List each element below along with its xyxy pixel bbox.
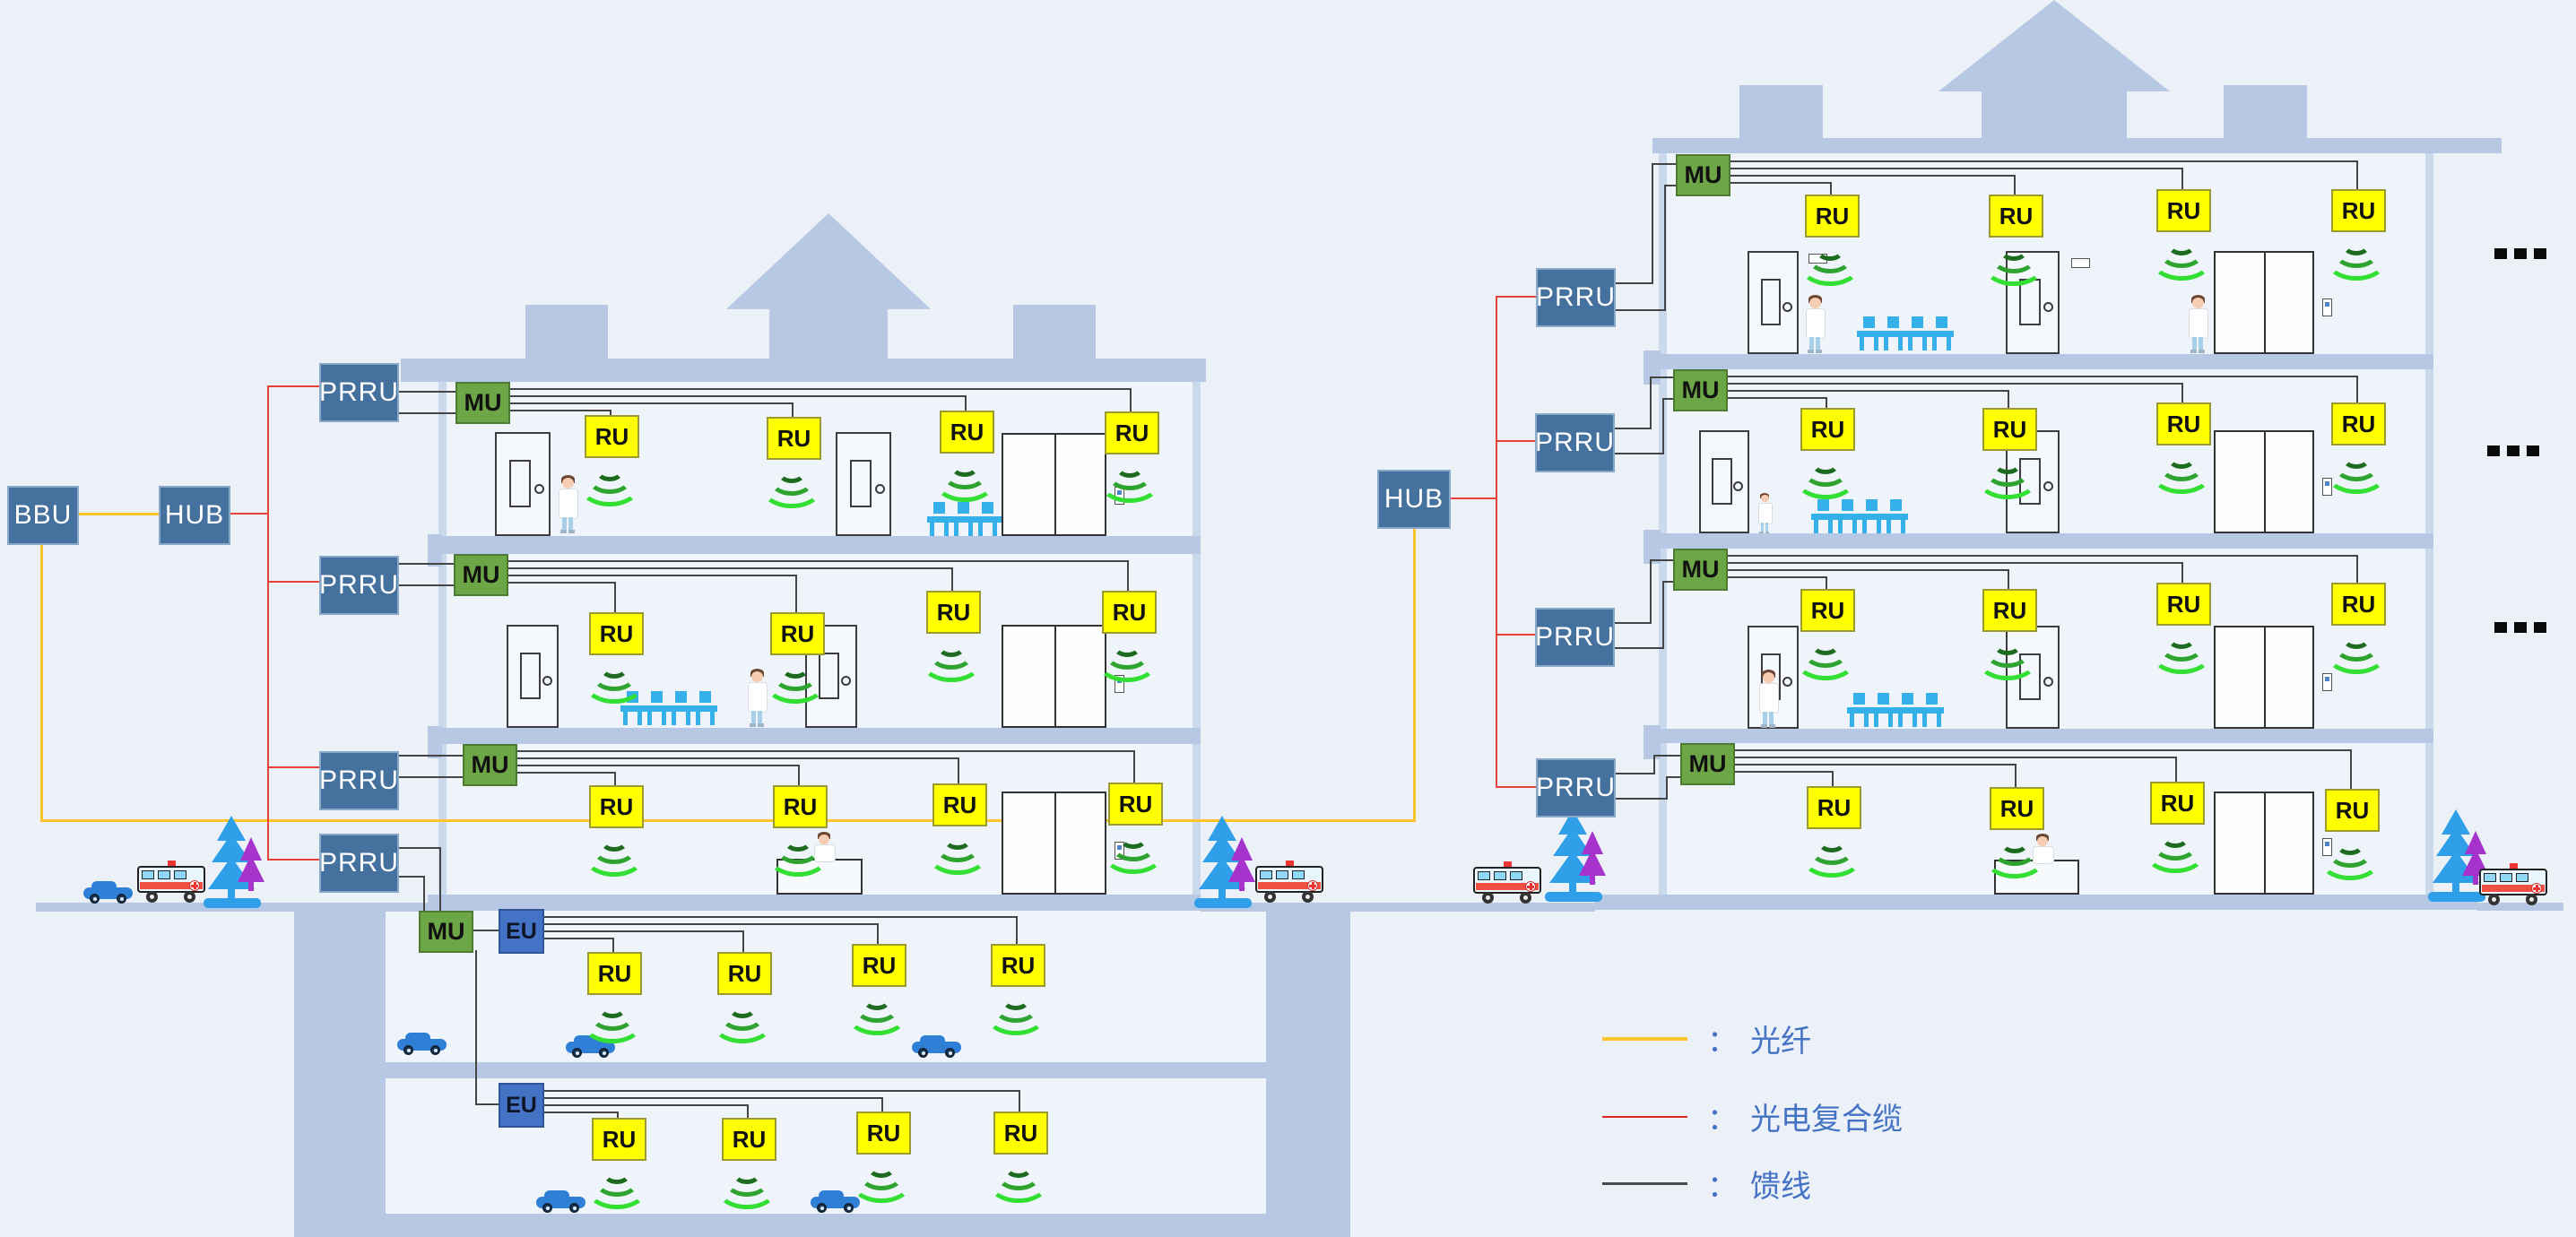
legend-label-feeder: 馈线 — [1750, 1162, 1811, 1206]
ellipsis-more-floors-icon — [2527, 445, 2539, 456]
ellipsis-more-floors-icon — [2494, 622, 2507, 633]
elevator-icon — [2214, 792, 2314, 895]
composite-cable-line — [1447, 497, 1497, 499]
ellipsis-more-floors-icon — [2514, 622, 2527, 633]
ambulance-cross-icon — [1527, 886, 1534, 888]
chair-icon — [651, 691, 663, 703]
ru-box: RU — [2331, 189, 2386, 232]
feeder-line — [1731, 757, 2177, 758]
chair-icon — [1863, 316, 1875, 328]
prru-box: PRRU — [1536, 758, 1616, 817]
feeder-line — [1662, 398, 1664, 454]
ru-box: RU — [722, 1118, 776, 1161]
chair-icon — [1860, 514, 1884, 520]
signal-icon — [848, 989, 906, 1028]
tree-purple-icon — [1590, 874, 1595, 885]
ru-box: RU — [770, 612, 825, 655]
signal-icon — [1803, 831, 1860, 870]
signal-icon — [585, 830, 643, 869]
chair-icon — [978, 523, 983, 536]
feeder-line — [541, 923, 879, 925]
ru-box: RU — [856, 1112, 911, 1155]
fiber-line — [40, 541, 43, 822]
ambulance-wheel-icon — [187, 895, 192, 899]
chair-icon — [1890, 499, 1902, 511]
tree-base-icon — [1545, 892, 1602, 902]
feeder-line — [1662, 581, 1664, 649]
feeder-line — [395, 584, 455, 586]
chair-icon — [958, 502, 969, 514]
ambulance-icon — [1292, 870, 1305, 879]
feeder-line — [1611, 647, 1664, 649]
feeder-line — [1611, 428, 1652, 429]
doctor-figure — [1756, 493, 1774, 534]
signal-icon — [1797, 453, 1854, 492]
feeder-line — [541, 1112, 619, 1113]
floor-slab — [1659, 533, 2433, 549]
ambulance-wheel-icon — [150, 895, 154, 899]
feeder-line — [1652, 163, 1653, 284]
ellipsis-more-floors-icon — [2487, 445, 2500, 456]
ru-box: RU — [1108, 783, 1163, 826]
feeder-line — [1019, 1090, 1020, 1113]
chair-icon — [1874, 714, 1878, 727]
elevator-icon — [1002, 433, 1106, 536]
signal-icon — [1986, 832, 2043, 871]
signal-icon — [2153, 627, 2210, 667]
elevator-call-panel-icon — [2322, 673, 2332, 691]
composite-cable-line — [267, 385, 321, 387]
network-architecture-diagram: BBUHUBHUBPRRUPRRUPRRUPRRUPRRUPRRUPRRUPRR… — [0, 0, 2576, 1237]
car-wheel-icon — [434, 1049, 438, 1052]
chair-icon — [1895, 707, 1920, 714]
feeder-line — [541, 1090, 1020, 1092]
floor-slab — [1659, 729, 2433, 743]
chair-icon — [675, 691, 687, 703]
chair-icon — [944, 523, 949, 536]
feeder-line — [507, 388, 1132, 390]
feeder-line — [2181, 168, 2183, 191]
building-roof — [1652, 138, 2502, 153]
ambulance-wheel-icon — [1523, 895, 1528, 900]
feeder-line — [1664, 185, 1666, 311]
feeder-line — [742, 930, 744, 954]
ru-box: RU — [1982, 408, 2037, 451]
feeder-line — [1727, 182, 1832, 184]
door-icon — [836, 432, 891, 536]
ru-box: RU — [587, 952, 642, 995]
ambulance-wheel-icon — [1486, 895, 1490, 900]
roof-arrow-icon — [1939, 0, 2170, 138]
chair-icon — [1862, 520, 1867, 533]
signal-icon — [1105, 827, 1162, 867]
chair-icon — [1847, 707, 1871, 714]
chair-icon — [1926, 693, 1938, 705]
composite-cable-line — [1496, 440, 1537, 442]
signal-icon — [588, 1163, 646, 1202]
signal-icon — [853, 1156, 910, 1196]
street-ground — [1201, 903, 1595, 912]
ambulance-wheel-icon — [2492, 897, 2496, 902]
building-roof — [401, 359, 1206, 382]
ru-box: RU — [2325, 789, 2380, 832]
hub-box: HUB — [1377, 470, 1451, 529]
bbu-box: BBU — [7, 486, 79, 545]
feeder-line — [1727, 175, 2016, 177]
chair-icon — [1877, 520, 1881, 533]
floor-slab — [1659, 354, 2433, 369]
building-wall — [438, 382, 447, 895]
chair-icon — [933, 502, 945, 514]
ru-box: RU — [1800, 408, 1855, 451]
doctor-figure — [1756, 670, 1781, 729]
signal-icon — [2328, 234, 2385, 273]
mu-box: MU — [419, 911, 473, 953]
feeder-line — [423, 876, 425, 913]
feeder-line — [1611, 622, 1652, 624]
chimney — [1739, 85, 1823, 138]
feeder-line — [1731, 771, 1834, 773]
signal-icon — [714, 997, 771, 1036]
signal-icon — [2153, 234, 2210, 273]
chair-icon — [710, 712, 715, 725]
chair-icon — [662, 712, 666, 725]
feeder-line — [2356, 555, 2358, 584]
chair-icon — [1871, 707, 1895, 714]
prru-box: PRRU — [319, 363, 399, 422]
feeder-line — [2175, 757, 2177, 783]
feeder-line — [2356, 376, 2358, 404]
soil-block — [294, 907, 386, 1237]
chair-icon — [696, 712, 700, 725]
chair-icon — [623, 712, 628, 725]
chair-icon — [1908, 337, 1912, 350]
signal-icon — [923, 636, 980, 675]
ru-box: RU — [2331, 583, 2386, 626]
basement-slab — [386, 1062, 1266, 1078]
chair-icon — [1814, 520, 1818, 533]
feeder-line — [1727, 168, 2183, 169]
mu-box: MU — [1680, 743, 1735, 785]
chair-icon — [1912, 714, 1917, 727]
chair-icon — [699, 691, 711, 703]
feeder-line — [1724, 390, 2009, 392]
chair-icon — [1811, 514, 1835, 520]
eu-box: EU — [499, 1083, 544, 1128]
feeder-line — [507, 410, 611, 411]
chair-icon — [1936, 316, 1947, 328]
chair-icon — [930, 523, 934, 536]
feeder-line — [1653, 755, 1682, 757]
chair-icon — [1878, 693, 1889, 705]
feeder-line — [2356, 160, 2358, 191]
ru-box: RU — [2156, 402, 2211, 445]
signal-icon — [2328, 447, 2385, 487]
chimney — [1013, 305, 1096, 359]
ambulance-icon — [2516, 873, 2528, 882]
ru-box: RU — [2331, 402, 2386, 445]
doctor-figure — [1802, 295, 1827, 354]
feeder-line — [439, 847, 441, 913]
chair-icon — [1902, 693, 1913, 705]
feeder-line — [2008, 390, 2009, 410]
mu-box: MU — [1676, 154, 1730, 196]
feeder-line — [958, 757, 959, 785]
feeder-line — [1016, 916, 1018, 946]
feeder-line — [1612, 798, 1668, 800]
chair-icon — [1887, 316, 1899, 328]
ambulance-icon — [1260, 870, 1272, 879]
feeder-line — [514, 765, 800, 766]
ambulance-wheel-icon — [1268, 895, 1272, 899]
chair-icon — [637, 712, 642, 725]
chair-icon — [1884, 514, 1908, 520]
floor-slab-lip — [428, 534, 442, 567]
feeder-line — [1650, 376, 1652, 429]
feeder-line — [514, 772, 616, 774]
floor-slab-lip — [428, 726, 442, 758]
ambulance-icon — [2484, 873, 2496, 882]
ru-box: RU — [1807, 786, 1861, 829]
building-wall — [1193, 382, 1201, 895]
chair-icon — [1922, 337, 1927, 350]
ellipsis-more-floors-icon — [2514, 248, 2527, 259]
chair-icon — [1912, 316, 1923, 328]
composite-cable-line — [1496, 786, 1538, 788]
feeder-line — [395, 876, 425, 878]
ambulance-cross-icon — [191, 885, 198, 887]
chair-icon — [951, 516, 976, 523]
ru-box: RU — [993, 1112, 1048, 1155]
ru-box: RU — [2156, 583, 2211, 626]
ru-box: RU — [717, 952, 772, 995]
chair-icon — [1874, 337, 1878, 350]
feeder-line — [1650, 559, 1675, 561]
feeder-line — [395, 391, 457, 393]
ru-box: RU — [1102, 591, 1157, 634]
feeder-line — [1666, 776, 1668, 800]
floor-slab — [438, 728, 1201, 744]
mu-box: MU — [1673, 549, 1728, 591]
ambulance-icon — [158, 870, 170, 879]
chair-icon — [1886, 520, 1891, 533]
feeder-line-sample — [1602, 1182, 1687, 1185]
feeder-line — [507, 402, 794, 404]
chair-icon — [954, 523, 958, 536]
floor-slab — [438, 536, 1201, 554]
chair-icon — [1898, 714, 1903, 727]
signal-icon — [585, 657, 643, 696]
chair-icon — [1853, 693, 1865, 705]
feeder-line — [1653, 755, 1655, 774]
tree-purple-icon — [2473, 874, 2478, 885]
signal-icon — [2321, 834, 2379, 873]
feeder-line — [1724, 383, 2183, 385]
roof-arrow-icon — [726, 213, 931, 359]
chair-icon — [1898, 337, 1903, 350]
ambulance-icon — [142, 870, 154, 879]
composite-cable-line — [1496, 634, 1537, 636]
signal-icon — [718, 1163, 776, 1202]
chair-icon — [1920, 707, 1944, 714]
ru-box: RU — [767, 417, 821, 460]
legend-row-fiber: ： 光纤 — [1602, 1016, 1811, 1060]
feeder-line — [2014, 175, 2016, 196]
legend-row-feeder: ： 馈线 — [1602, 1162, 1811, 1206]
signal-icon — [1797, 634, 1854, 673]
chair-icon — [1838, 520, 1843, 533]
signal-icon — [769, 830, 827, 869]
basement-ground — [296, 1214, 1350, 1237]
feeder-line — [877, 923, 879, 946]
feeder-line — [505, 582, 616, 584]
feeder-line — [1612, 282, 1653, 284]
chair-icon — [1866, 499, 1878, 511]
feeder-line — [1611, 453, 1664, 454]
door-icon — [495, 432, 551, 536]
composite-cable-sample — [1602, 1116, 1687, 1118]
ambulance-icon — [1276, 870, 1288, 879]
signal-icon — [1801, 239, 1859, 279]
feeder-line — [1127, 560, 1129, 593]
chair-icon — [993, 523, 997, 536]
feeder-line — [541, 930, 744, 932]
chair-icon — [1850, 714, 1854, 727]
ru-box: RU — [932, 783, 987, 826]
feeder-line — [395, 847, 441, 849]
composite-cable-line — [267, 385, 269, 861]
feeder-line — [514, 757, 959, 759]
feeder-line — [1650, 559, 1652, 624]
building-foundation — [1595, 895, 2478, 910]
feeder-line — [951, 567, 953, 593]
tree-base-icon — [1194, 898, 1252, 908]
prru-box: PRRU — [1535, 608, 1615, 667]
feeder-line — [1650, 376, 1675, 378]
composite-cable-line — [227, 513, 269, 515]
signal-icon — [1101, 456, 1158, 496]
legend-colon: ： — [1707, 1016, 1738, 1060]
feeder-line — [475, 1103, 500, 1105]
feeder-line — [1724, 562, 2183, 564]
chair-icon — [1901, 520, 1905, 533]
chair-icon — [686, 712, 690, 725]
ru-box: RU — [852, 944, 906, 987]
feeder-line — [2181, 562, 2183, 584]
ru-box: RU — [585, 415, 639, 458]
signal-icon — [2153, 447, 2210, 487]
prru-box: PRRU — [1536, 268, 1616, 327]
feeder-line — [395, 563, 455, 565]
elevator-icon — [2214, 626, 2314, 729]
soil-block — [1266, 907, 1350, 1237]
chair-icon — [1930, 331, 1954, 337]
chair-icon — [1860, 337, 1864, 350]
mu-box: MU — [1673, 369, 1728, 411]
feeder-line — [1612, 309, 1666, 311]
tree-purple-icon — [248, 880, 254, 891]
signal-icon — [1985, 239, 2043, 279]
chair-icon — [645, 705, 669, 712]
chair-icon — [1884, 337, 1888, 350]
chair-icon — [1937, 714, 1941, 727]
ellipsis-more-floors-icon — [2534, 248, 2546, 259]
ellipsis-more-floors-icon — [2534, 622, 2546, 633]
car-wheel-icon — [120, 897, 124, 901]
ru-box: RU — [592, 1118, 646, 1161]
legend-label-fiber: 光纤 — [1750, 1016, 1811, 1060]
feeder-line — [1731, 749, 2352, 751]
feeder-line — [1724, 576, 1827, 578]
feeder-line — [2350, 749, 2352, 791]
feeder-line — [395, 776, 464, 778]
signal-icon — [584, 997, 641, 1036]
mu-box: MU — [455, 382, 510, 424]
ru-box: RU — [589, 612, 644, 655]
signal-icon — [581, 460, 638, 499]
chair-icon — [647, 712, 652, 725]
feeder-line — [541, 1104, 749, 1106]
chair-icon — [672, 712, 676, 725]
composite-cable-line — [267, 859, 321, 861]
tree-base-icon — [204, 898, 261, 908]
feeder-line — [1652, 163, 1678, 165]
signal-icon — [1979, 634, 2036, 673]
ru-box: RU — [589, 785, 644, 828]
signal-icon — [987, 989, 1045, 1028]
car-wheel-icon — [922, 1051, 925, 1055]
chair-icon — [1881, 331, 1905, 337]
chair-icon — [968, 523, 973, 536]
fiber-line — [40, 819, 1416, 822]
chair-icon — [1835, 514, 1860, 520]
doctor-figure — [2185, 295, 2210, 354]
ambulance-wheel-icon — [1305, 895, 1310, 899]
ru-box: RU — [940, 411, 994, 454]
building-wall — [2425, 153, 2433, 895]
chair-icon — [1864, 714, 1869, 727]
composite-cable-line — [267, 766, 321, 768]
chimney — [525, 305, 608, 359]
feeder-line — [1130, 388, 1132, 413]
chair-icon — [1932, 337, 1937, 350]
chair-icon — [620, 705, 645, 712]
feeder-line — [470, 930, 500, 931]
ru-box: RU — [2150, 782, 2205, 825]
ru-box: RU — [1805, 195, 1860, 238]
wall-panel-icon — [2071, 258, 2090, 268]
ru-box: RU — [1105, 411, 1159, 454]
chair-icon — [1828, 520, 1833, 533]
legend-label-composite-cable: 光电复合缆 — [1750, 1094, 1903, 1138]
ambulance-icon — [2500, 873, 2512, 882]
feeder-line — [475, 950, 477, 1105]
tree-base-icon — [2428, 892, 2485, 902]
prru-box: PRRU — [319, 834, 399, 893]
signal-icon — [763, 462, 820, 501]
ambulance-icon — [174, 870, 186, 879]
elevator-call-panel-icon — [2322, 298, 2332, 316]
chair-icon — [1842, 499, 1853, 511]
elevator-icon — [1002, 625, 1106, 728]
mu-box: MU — [463, 744, 517, 786]
hub-box: HUB — [159, 486, 230, 545]
chair-icon — [693, 705, 717, 712]
feeder-line — [395, 412, 457, 414]
signal-icon — [1979, 453, 2036, 492]
floor-slab-lip — [1644, 350, 1661, 385]
car-wheel-icon — [546, 1207, 550, 1210]
